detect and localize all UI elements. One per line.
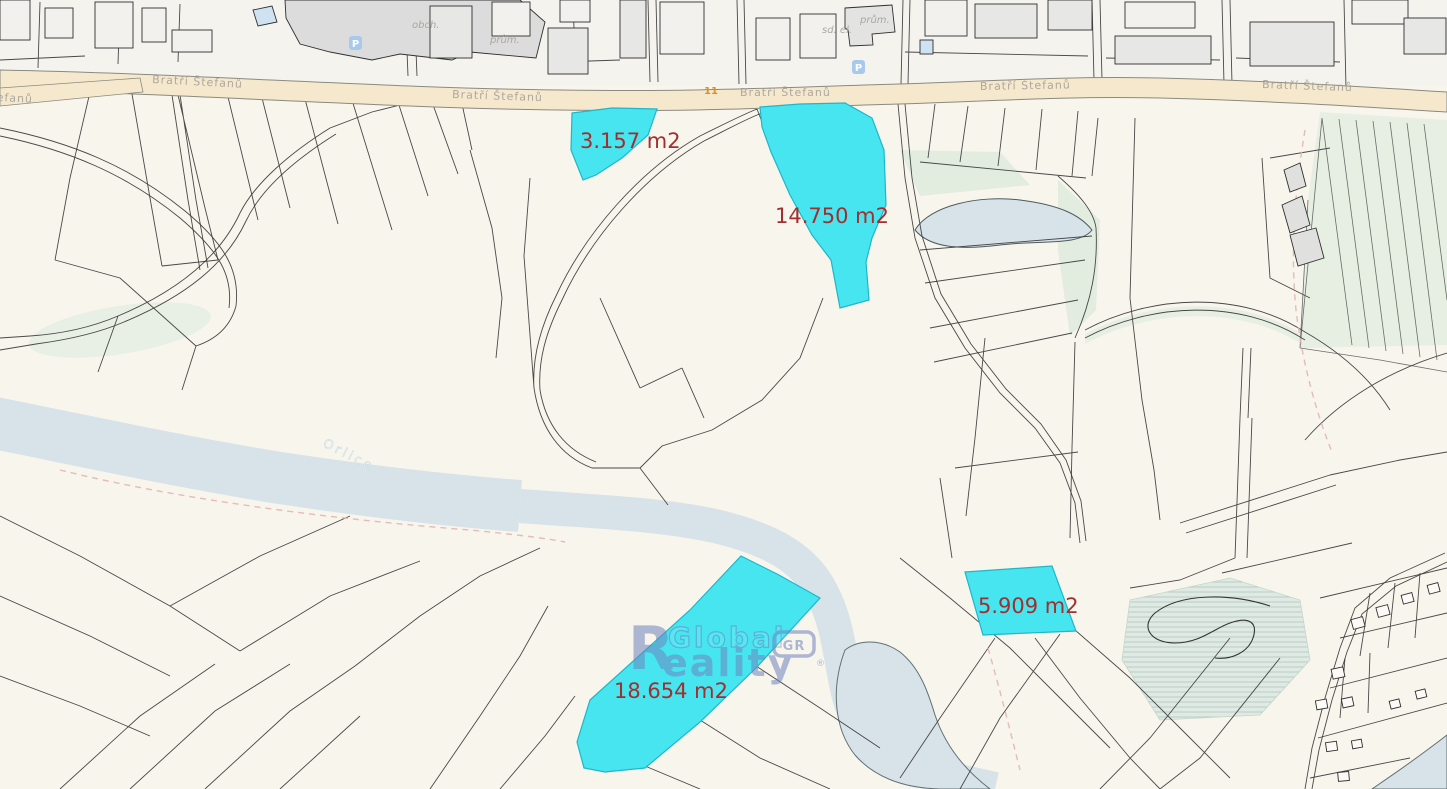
svg-text:P: P [352, 39, 359, 50]
cadastral-map: Orlice Bratří Štefanů Bratří Štefanů Bra… [0, 0, 1447, 789]
building-label-prum: prům. [489, 34, 520, 46]
area-label-5909: 5.909 m2 [978, 594, 1079, 618]
watermark-registered: ® [816, 659, 825, 669]
parking-icon: P [852, 60, 865, 74]
street-label: Bratří Štefanů [980, 78, 1071, 93]
building-blue [253, 6, 277, 26]
route-number-label: 11 [704, 86, 718, 97]
street-label: Bratří Štefanů [740, 86, 831, 99]
svg-text:P: P [855, 63, 862, 74]
area-label-3157: 3.157 m2 [580, 129, 681, 153]
building-label-obch: obch. [412, 20, 439, 31]
map-canvas: Orlice Bratří Štefanů Bratří Štefanů Bra… [0, 0, 1447, 789]
building-label-prum: prům. [859, 14, 890, 26]
area-label-14750: 14.750 m2 [775, 204, 889, 228]
building-blue [920, 40, 933, 54]
watermark-eality: eality [662, 641, 794, 685]
parking-icon: P [349, 36, 362, 50]
building-label-sdel: sd. el. [822, 25, 852, 36]
